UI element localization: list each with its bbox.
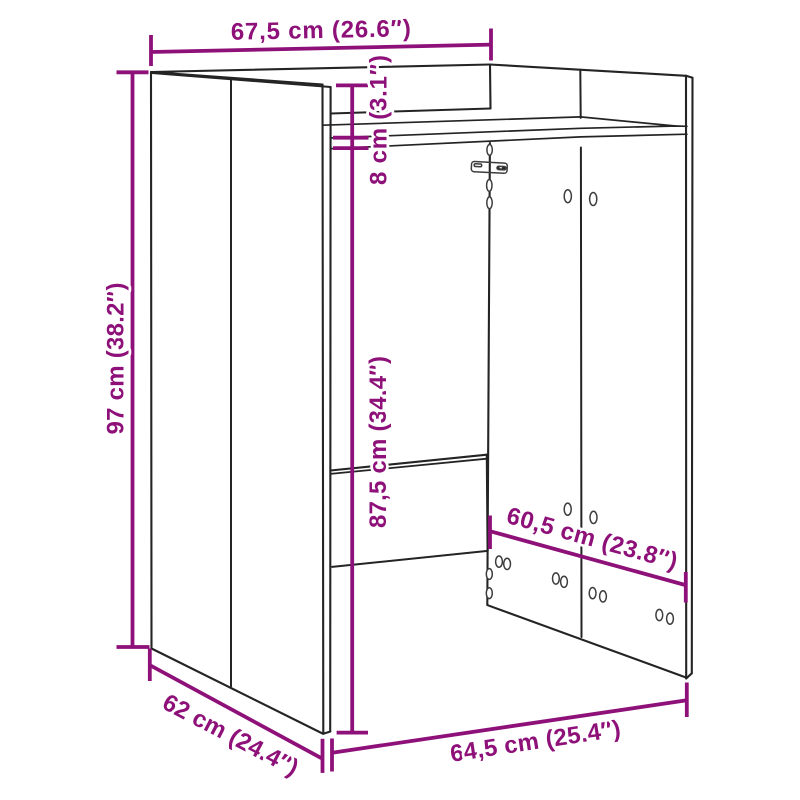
- svg-text:8 cm (3.1″): 8 cm (3.1″): [366, 55, 393, 185]
- svg-text:67,5 cm (26.6″): 67,5 cm (26.6″): [231, 15, 412, 46]
- svg-text:97 cm (38.2″): 97 cm (38.2″): [103, 283, 130, 435]
- svg-text:87,5 cm (34.4″): 87,5 cm (34.4″): [365, 356, 392, 528]
